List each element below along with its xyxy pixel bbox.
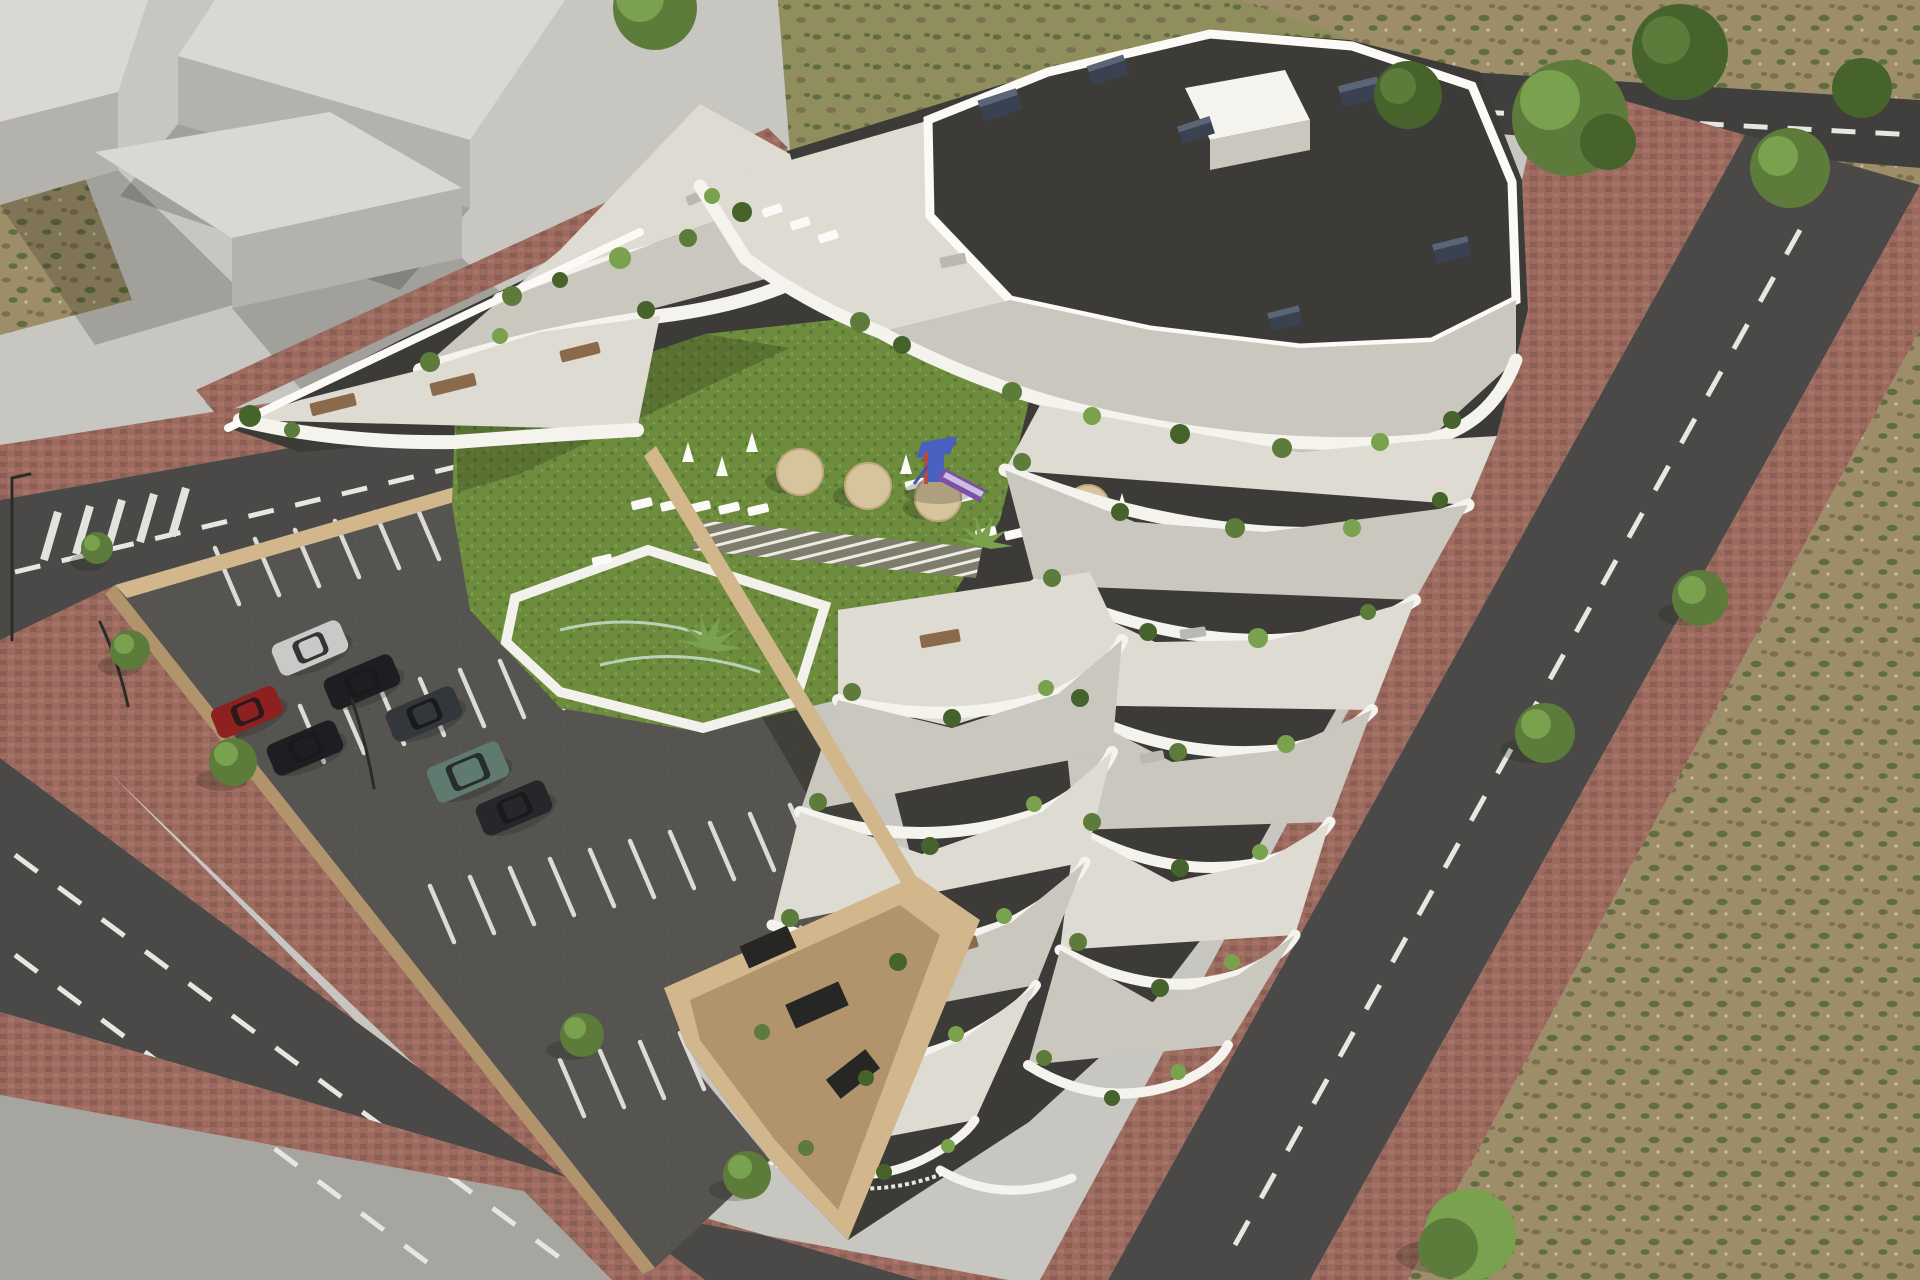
tree-large [1632,4,1728,100]
tree-large [1750,128,1830,208]
aerial-render-svg: Aerial 3D rendering of a modern white te… [0,0,1920,1280]
tree-large [1374,61,1442,129]
tree-large [1832,58,1892,118]
architectural-render-image: Aerial 3D rendering of a modern white te… [0,0,1920,1280]
